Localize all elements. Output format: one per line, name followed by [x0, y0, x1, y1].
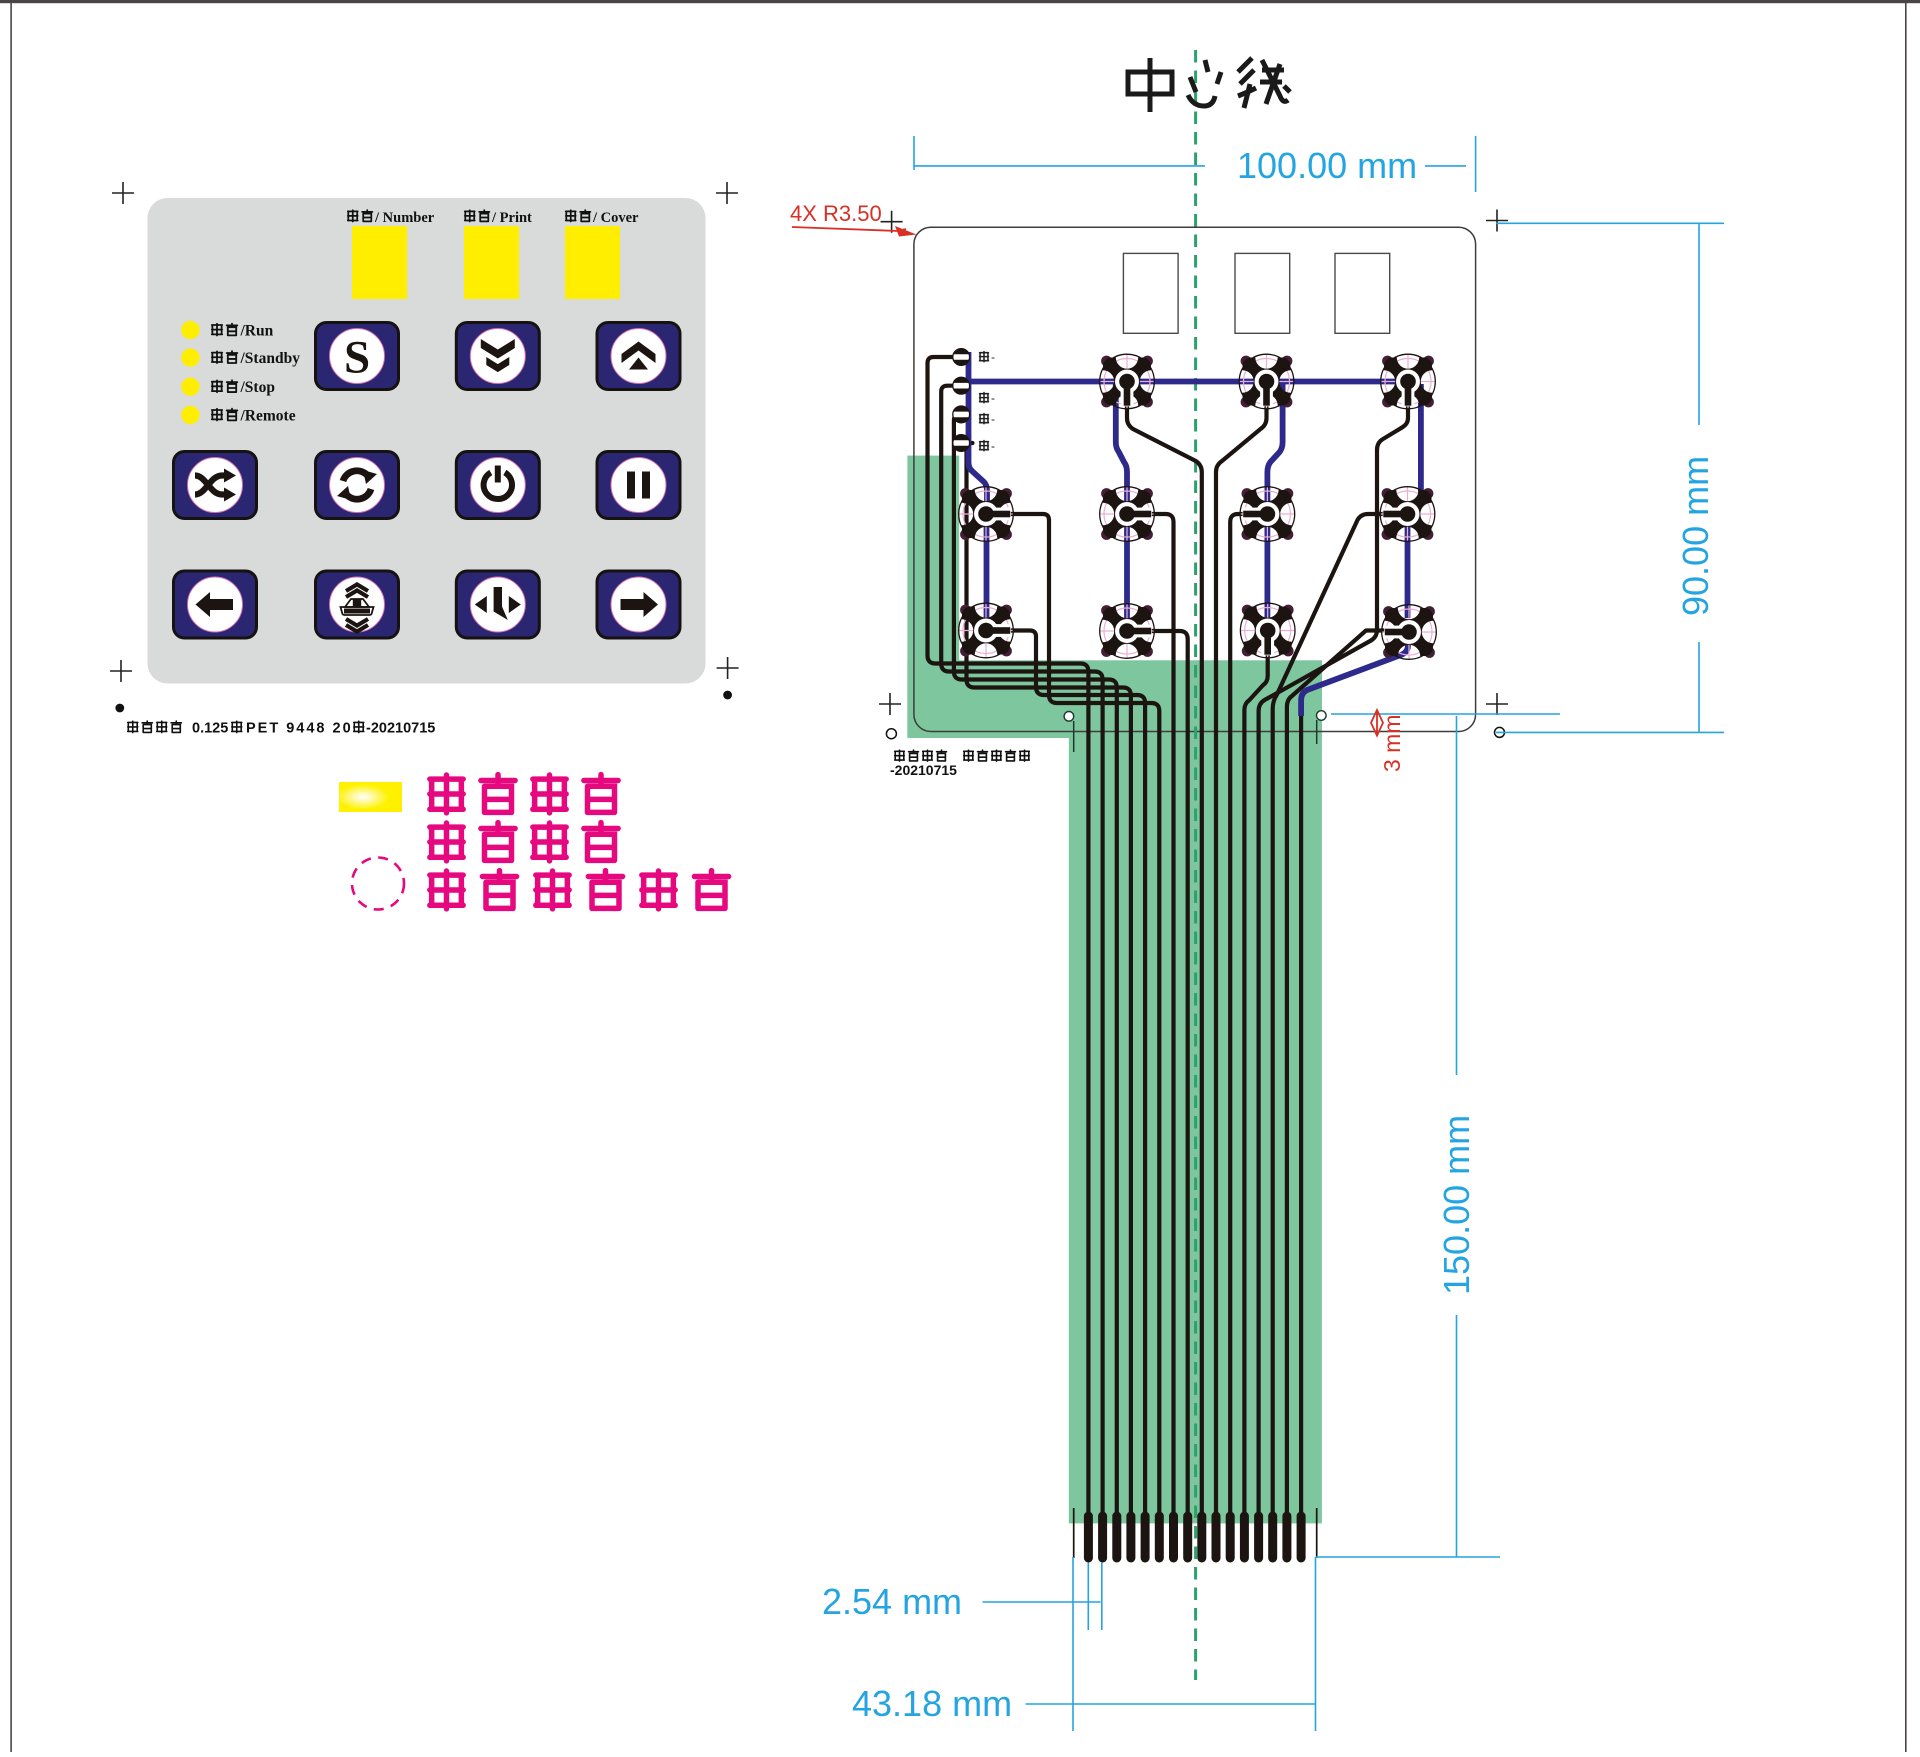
svg-text:4X R3.50: 4X R3.50: [790, 201, 882, 226]
svg-text:-: -: [991, 350, 995, 364]
svg-text:-: -: [991, 391, 995, 405]
svg-text:/ Print: / Print: [491, 210, 532, 226]
svg-text:PET 9448 20: PET 9448 20: [246, 721, 353, 737]
svg-text:-20210715: -20210715: [890, 762, 957, 778]
svg-text:/ Number: / Number: [374, 210, 435, 226]
svg-text:150.00 mm: 150.00 mm: [1436, 1115, 1477, 1295]
svg-text:43.18 mm: 43.18 mm: [852, 1683, 1012, 1724]
svg-text:100.00 mm: 100.00 mm: [1237, 145, 1417, 186]
svg-text:2.54 mm: 2.54 mm: [822, 1581, 962, 1622]
svg-text:/Standby: /Standby: [240, 350, 301, 367]
svg-text:-: -: [991, 412, 995, 426]
svg-text:/Stop: /Stop: [240, 379, 275, 396]
svg-text:3 mm: 3 mm: [1379, 715, 1405, 773]
svg-text:0.125: 0.125: [192, 721, 228, 737]
svg-text:-: -: [991, 439, 995, 453]
svg-text:/ Cover: / Cover: [592, 210, 639, 226]
svg-text:90.00 mm: 90.00 mm: [1675, 456, 1716, 616]
svg-text:/Remote: /Remote: [240, 408, 296, 425]
svg-text:S: S: [344, 332, 370, 384]
svg-text:/Run: /Run: [240, 323, 274, 340]
svg-text:-20210715: -20210715: [366, 721, 435, 737]
